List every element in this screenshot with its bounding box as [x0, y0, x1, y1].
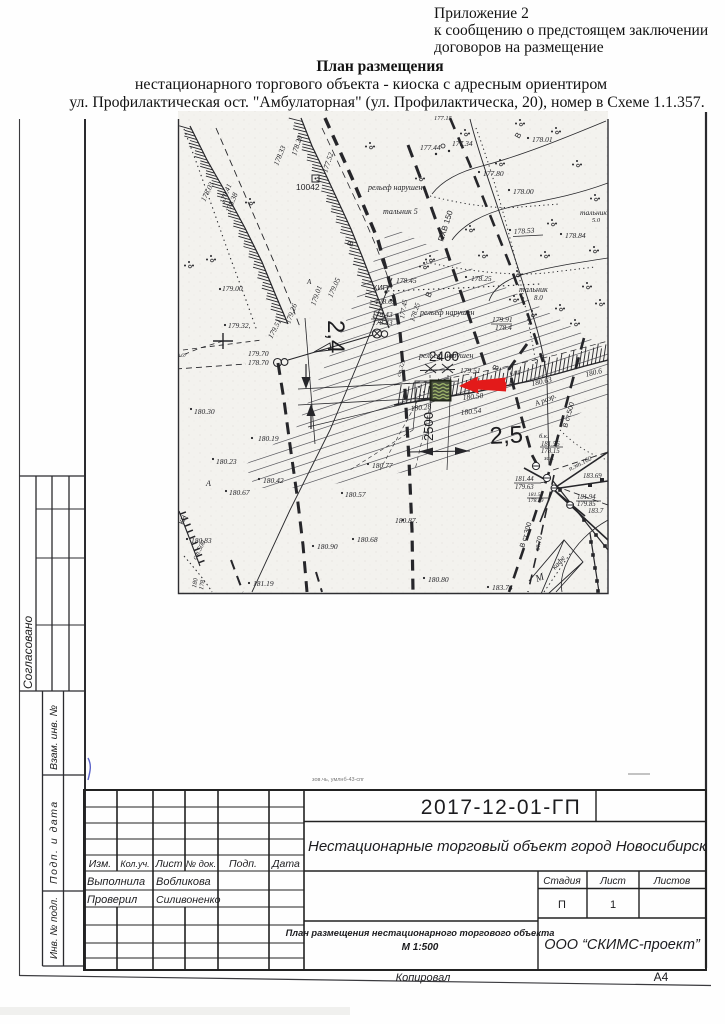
svg-text:179.70: 179.70 — [248, 349, 269, 358]
svg-text:Подп. и дата: Подп. и дата — [48, 800, 60, 884]
svg-text:5.0: 5.0 — [592, 217, 601, 224]
svg-text:Кол.уч.: Кол.уч. — [120, 859, 149, 869]
svg-text:181.44: 181.44 — [515, 476, 534, 483]
svg-text:178.84: 178.84 — [565, 231, 586, 240]
svg-text:рельеф нарушен: рельеф нарушен — [367, 183, 423, 192]
svg-text:10042: 10042 — [296, 182, 320, 192]
svg-text:КИП: КИП — [373, 283, 388, 292]
svg-text:180.57: 180.57 — [345, 490, 366, 499]
svg-text:Изм.: Изм. — [89, 858, 111, 870]
svg-text:Дата: Дата — [271, 858, 300, 870]
svg-text:178.19: 178.19 — [528, 498, 544, 504]
svg-text:Стадия: Стадия — [543, 876, 581, 887]
svg-text:Проверил: Проверил — [87, 894, 137, 906]
svg-text:Лист: Лист — [154, 858, 182, 870]
svg-text:177.80: 177.80 — [483, 169, 504, 178]
svg-text:180.19: 180.19 — [258, 434, 279, 443]
svg-text:178.4: 178.4 — [495, 323, 512, 332]
svg-text:178.25: 178.25 — [471, 274, 492, 283]
svg-text:177.15: 177.15 — [434, 115, 453, 122]
svg-text:нестационарного торгового объе: нестационарного торгового объекта - киос… — [135, 76, 607, 93]
svg-text:Лист: Лист — [599, 876, 626, 887]
svg-text:180.90: 180.90 — [317, 542, 338, 551]
svg-text:178.53: 178.53 — [514, 226, 535, 236]
svg-text:180.30: 180.30 — [194, 407, 215, 416]
svg-text:177.34: 177.34 — [452, 139, 473, 148]
svg-text:тальник: тальник — [580, 208, 607, 217]
svg-text:180.68: 180.68 — [357, 535, 378, 544]
svg-text:2,5: 2,5 — [489, 421, 524, 450]
svg-text:178.70: 178.70 — [248, 358, 269, 367]
svg-text:178.01: 178.01 — [532, 135, 553, 144]
svg-text:181.19: 181.19 — [253, 579, 274, 588]
svg-text:178.69: 178.69 — [375, 297, 396, 306]
svg-text:183.74: 183.74 — [492, 583, 513, 592]
svg-text:рельеф нарушен: рельеф нарушен — [419, 308, 475, 317]
svg-text:б.к.: б.к. — [539, 433, 549, 440]
svg-text:179.85: 179.85 — [577, 501, 596, 508]
svg-text:178.00: 178.00 — [513, 187, 534, 196]
svg-text:ООО “СКИМС-проект”: ООО “СКИМС-проект” — [544, 937, 701, 953]
svg-text:Копировал: Копировал — [396, 972, 451, 984]
svg-text:2,4: 2,4 — [322, 320, 349, 353]
svg-text:зал.: зал. — [543, 455, 554, 462]
svg-text:178.45: 178.45 — [396, 276, 417, 285]
svg-text:зов.чь, умлнб-43-спг: зов.чь, умлнб-43-спг — [312, 777, 364, 783]
svg-text:№ док.: № док. — [186, 859, 217, 870]
svg-text:Инв. № подл.: Инв. № подл. — [49, 897, 60, 959]
svg-text:179.32,: 179.32, — [228, 321, 251, 330]
svg-text:к сообщению о предстоящем закл: к сообщению о предстоящем заключении — [434, 22, 708, 39]
svg-text:П: П — [558, 899, 566, 911]
svg-text:183.69: 183.69 — [583, 473, 602, 480]
svg-text:Взам. инв. №: Взам. инв. № — [48, 705, 60, 770]
svg-text:Приложение 2: Приложение 2 — [434, 5, 529, 22]
svg-text:Вобликова: Вобликова — [156, 876, 211, 888]
svg-text:Силивоненко: Силивоненко — [156, 894, 221, 906]
svg-text:Нестационарные торговый объект: Нестационарные торговый объект город Нов… — [308, 838, 707, 855]
svg-text:179.51: 179.51 — [460, 366, 481, 375]
svg-text:181.56: 181.56 — [541, 441, 560, 448]
svg-text:180.42: 180.42 — [263, 476, 284, 485]
svg-text:179.00: 179.00 — [222, 284, 243, 293]
svg-text:177.44: 177.44 — [420, 143, 441, 152]
svg-text:Согласовано: Согласовано — [21, 615, 35, 689]
svg-text:Подп.: Подп. — [229, 858, 257, 870]
svg-text:180.80: 180.80 — [428, 575, 449, 584]
svg-text:А: А — [205, 479, 211, 488]
svg-text:180.77: 180.77 — [372, 461, 393, 470]
svg-text:178.15: 178.15 — [541, 448, 560, 455]
svg-text:179.63: 179.63 — [515, 484, 534, 491]
svg-text:1: 1 — [610, 899, 616, 911]
svg-text:180.67: 180.67 — [229, 488, 250, 497]
svg-text:План размещения нестационарног: План размещения нестационарного торговог… — [286, 928, 555, 938]
svg-text:180.87.: 180.87. — [395, 516, 418, 525]
svg-text:2017-12-01-ГП: 2017-12-01-ГП — [421, 796, 581, 819]
svg-text:рельеф нарушен: рельеф нарушен — [418, 351, 474, 360]
svg-text:183.7: 183.7 — [588, 508, 604, 515]
svg-text:договоров на размещение: договоров на размещение — [434, 39, 604, 56]
svg-text:Листов: Листов — [653, 876, 690, 887]
svg-text:А4: А4 — [654, 970, 669, 984]
svg-text:8.0: 8.0 — [534, 294, 543, 302]
svg-text:178.43: 178.43 — [372, 318, 393, 327]
svg-text:181.94: 181.94 — [577, 494, 596, 501]
svg-text:2500: 2500 — [421, 412, 436, 441]
svg-text:Выполнила: Выполнила — [87, 876, 145, 888]
svg-text:180.23: 180.23 — [216, 457, 237, 466]
svg-text:А: А — [306, 278, 312, 286]
svg-text:тальник: тальник — [519, 285, 548, 294]
svg-text:тальник 5: тальник 5 — [383, 207, 418, 216]
svg-text:План размещения: План размещения — [316, 58, 443, 75]
svg-text:М 1:500: М 1:500 — [402, 942, 439, 953]
svg-text:ул. Профилактическая ост. "Амб: ул. Профилактическая ост. "Амбулаторная"… — [69, 94, 704, 111]
